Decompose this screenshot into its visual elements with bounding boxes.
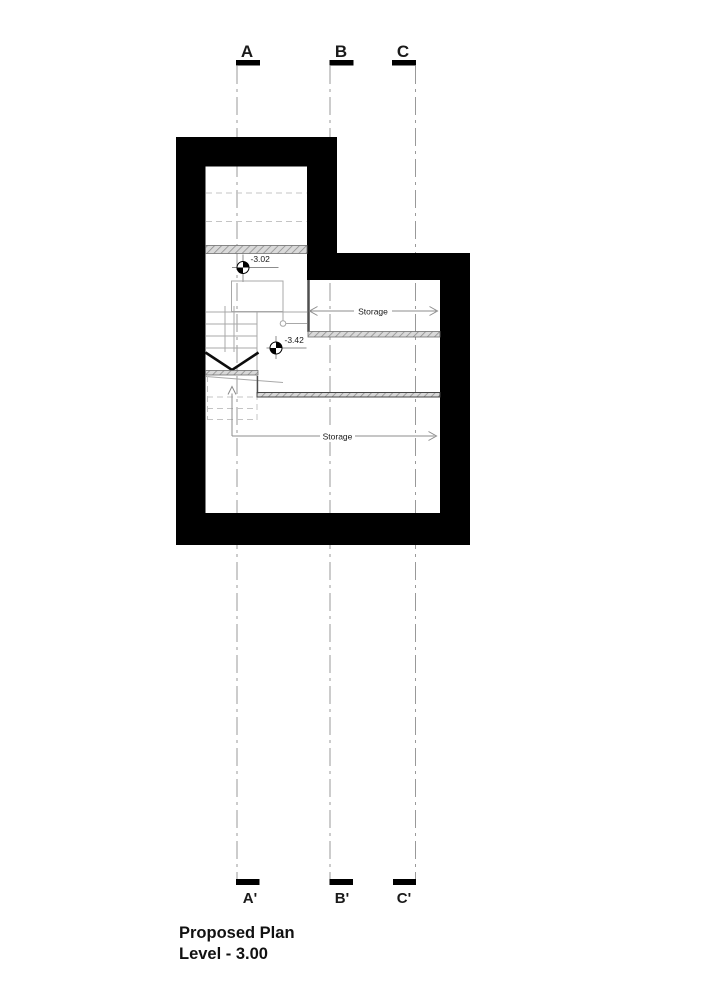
grid-header: A B C	[236, 42, 416, 66]
datum-quadrant	[243, 262, 249, 268]
title-line1: Proposed Plan	[179, 924, 295, 942]
storage-upper-dimension: Storage	[310, 304, 438, 317]
grid-label-c-top: C	[397, 42, 409, 61]
wall-hatch-stair	[206, 371, 259, 376]
upper-room-dashed-lines	[206, 193, 307, 222]
stair-landing	[232, 281, 284, 312]
grid-tick-b-bottom	[330, 879, 354, 885]
partition-lower-band	[257, 393, 440, 398]
grid-label-b-bottom: B'	[335, 890, 349, 907]
datum-quadrant	[237, 268, 243, 274]
stair-treads	[206, 306, 307, 392]
node-circle-icon	[280, 321, 286, 327]
building-walls	[176, 137, 470, 545]
storage-lower-label: Storage	[323, 432, 353, 442]
datum-marker-1: -3.02	[232, 254, 279, 282]
grid-tick-a-bottom	[236, 879, 260, 885]
arrow-up-icon	[228, 387, 236, 395]
wall-hatch-upper	[206, 246, 308, 254]
level-value-2: -3.42	[285, 335, 305, 345]
grid-footer: A' B' C'	[236, 879, 416, 907]
level-value-1: -3.02	[251, 254, 271, 264]
datum-marker-2: -3.42	[267, 335, 307, 359]
stair-break-chevron-icon	[206, 353, 259, 371]
grid-label-b-top: B	[335, 42, 347, 61]
datum-quadrant	[270, 348, 276, 354]
reference-line	[206, 377, 283, 383]
floorplan-canvas: A B C A' B' C' -3.02	[0, 0, 707, 1000]
storage-upper-label: Storage	[358, 307, 388, 317]
partition-lower	[257, 376, 440, 397]
grid-tick-c-bottom	[393, 879, 416, 885]
datum-quadrant	[276, 342, 282, 348]
title-line2: Level - 3.00	[179, 945, 268, 963]
grid-label-a-top: A	[241, 42, 253, 61]
grid-label-c-bottom: C'	[397, 890, 411, 907]
plan-title: Proposed Plan Level - 3.00	[179, 924, 295, 963]
floor-plan-sheet: A B C A' B' C' -3.02	[0, 0, 707, 1000]
wall-hatch-storage	[308, 332, 440, 338]
grid-label-a-bottom: A'	[243, 890, 257, 907]
